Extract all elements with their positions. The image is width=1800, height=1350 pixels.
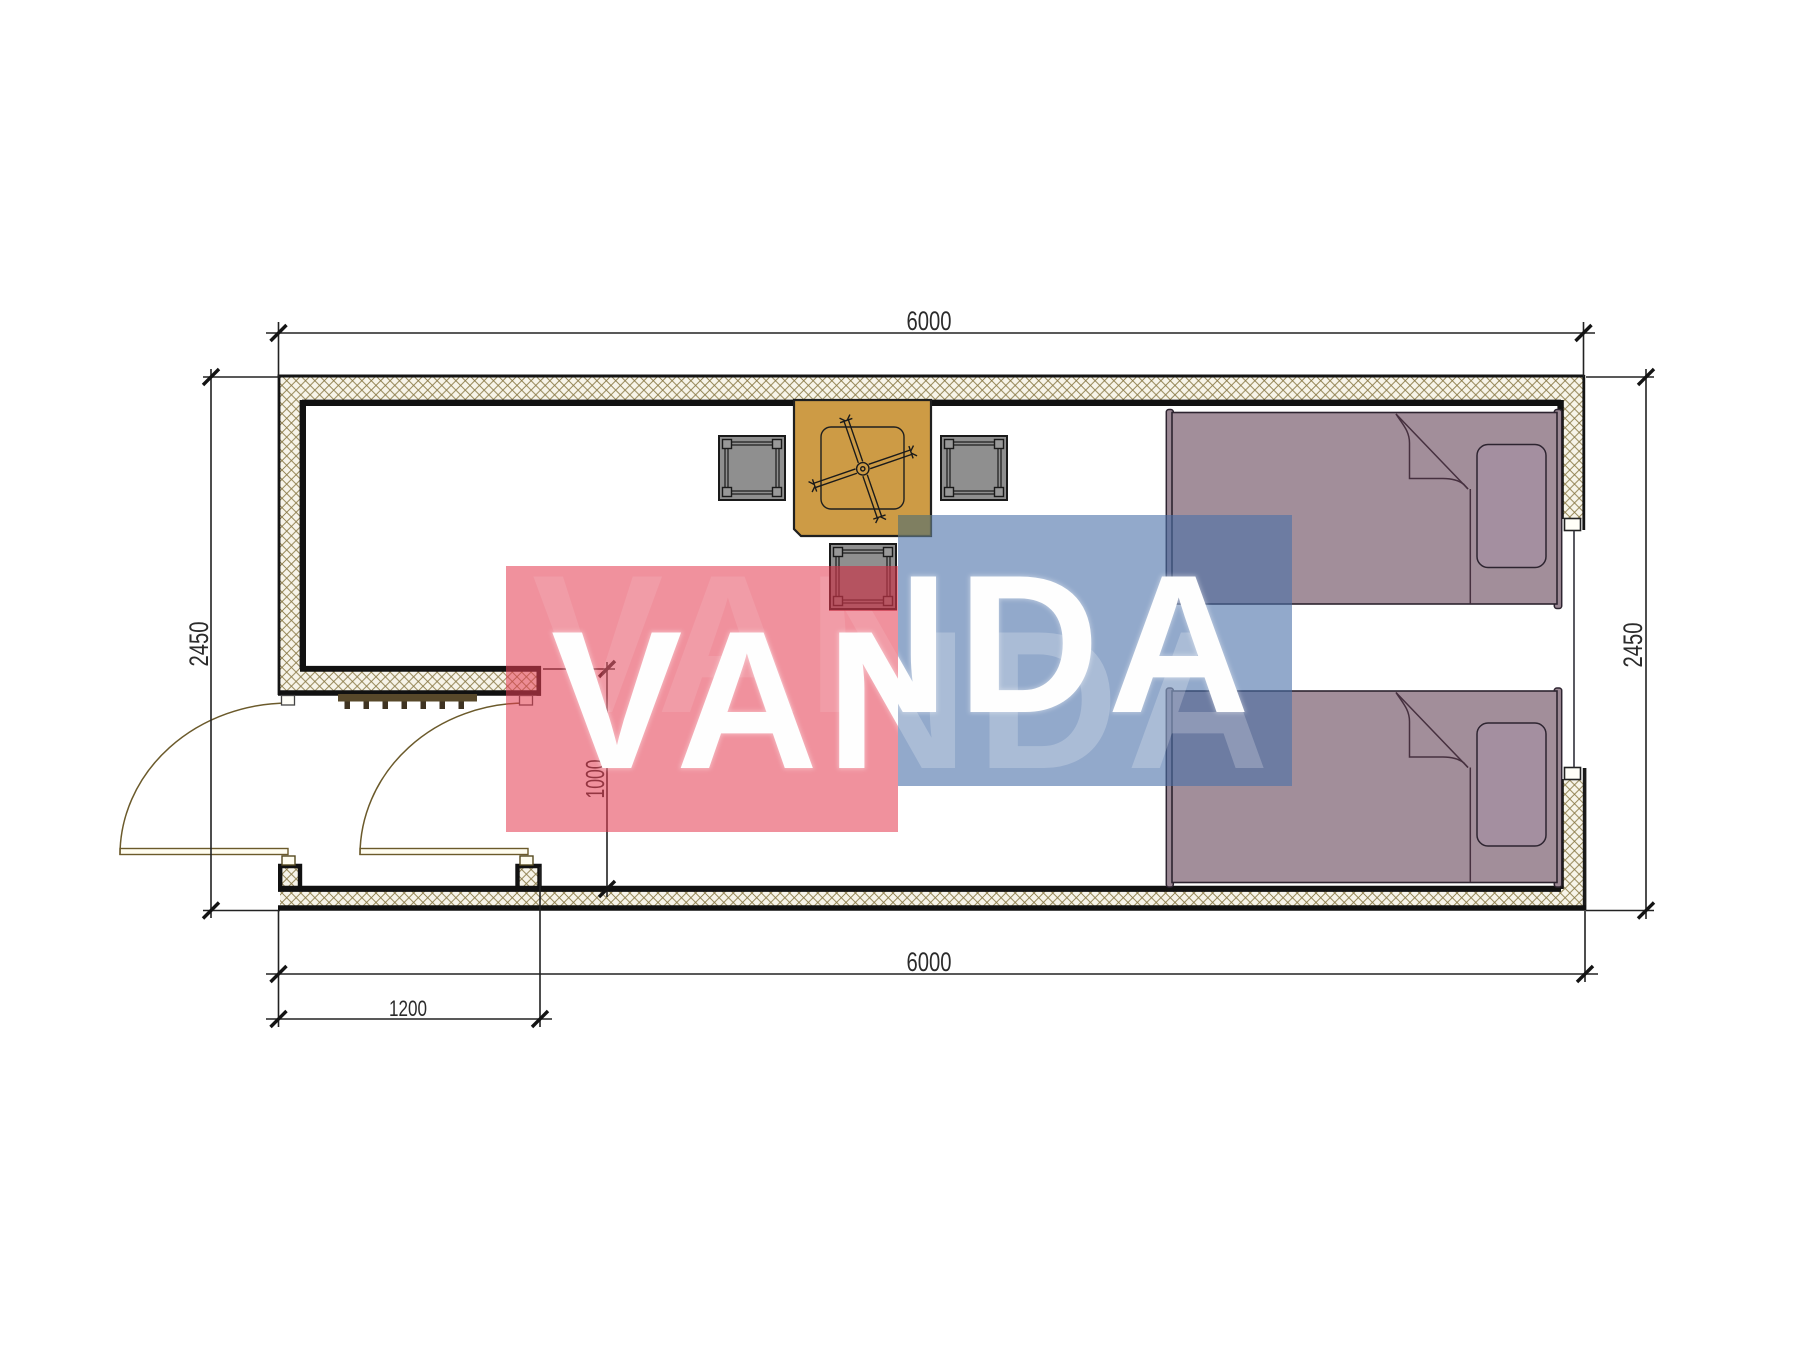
svg-text:2450: 2450 — [184, 622, 214, 667]
svg-text:6000: 6000 — [907, 947, 952, 977]
svg-text:2450: 2450 — [1618, 623, 1648, 668]
svg-text:1200: 1200 — [389, 996, 427, 1021]
svg-text:6000: 6000 — [907, 306, 952, 336]
